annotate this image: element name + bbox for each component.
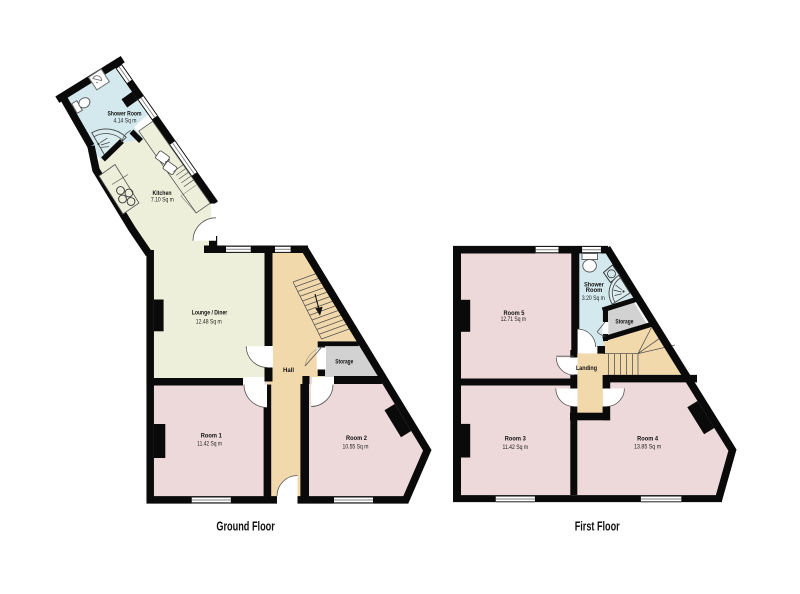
svg-text:Shower Room: Shower Room [108,110,142,117]
svg-text:11.42 Sq m: 11.42 Sq m [503,445,529,451]
svg-text:Lounge / Diner: Lounge / Diner [192,310,228,317]
svg-text:Room 1: Room 1 [201,433,222,440]
svg-text:Hall: Hall [283,367,294,374]
svg-text:13.85 Sq m: 13.85 Sq m [634,444,661,450]
svg-text:Room: Room [586,287,603,294]
svg-text:Kitchen: Kitchen [153,190,172,197]
svg-text:7.10 Sq m: 7.10 Sq m [151,198,174,204]
svg-text:Storage: Storage [615,319,633,326]
svg-text:12.71 Sq m: 12.71 Sq m [501,317,526,323]
svg-text:First Floor: First Floor [575,520,620,534]
svg-text:4.14 Sq m: 4.14 Sq m [114,118,137,124]
svg-text:Storage: Storage [335,359,353,366]
svg-text:12.48 Sq m: 12.48 Sq m [196,320,222,326]
svg-text:Room 2: Room 2 [346,435,367,442]
svg-text:Ground Floor: Ground Floor [216,520,275,534]
svg-text:Room 4: Room 4 [637,435,658,442]
svg-text:Room 3: Room 3 [505,436,526,443]
svg-text:3.20 Sq m: 3.20 Sq m [582,296,605,302]
svg-text:10.55 Sq m: 10.55 Sq m [343,444,369,450]
svg-text:Landing: Landing [576,365,597,372]
svg-text:11.42 Sq m: 11.42 Sq m [197,441,222,447]
